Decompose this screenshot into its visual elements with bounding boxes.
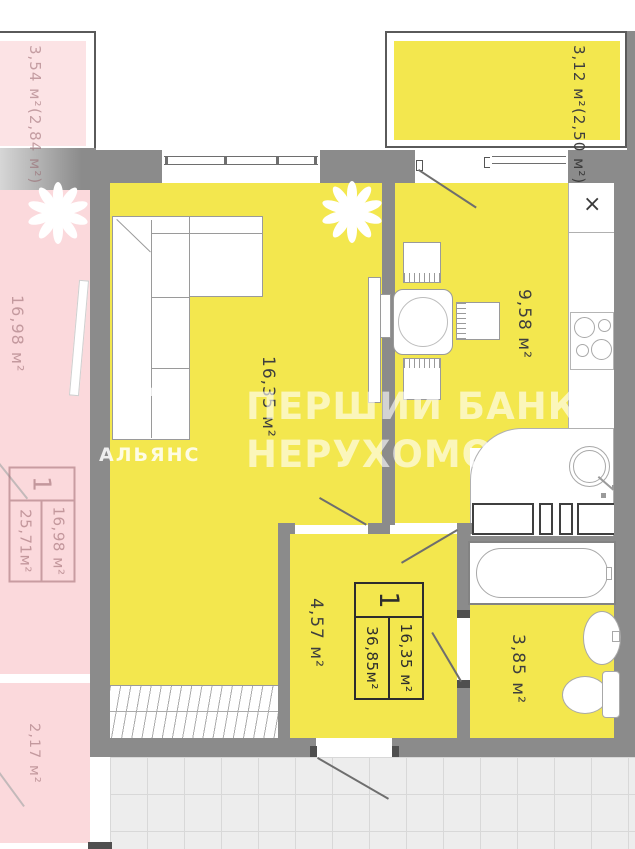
- neighbor-stamp: 1 16,98 м² 25,71м²: [9, 467, 76, 583]
- sink-cell-line: [568, 232, 614, 233]
- living-window-frame: [164, 156, 318, 165]
- cabinet-1: [472, 503, 534, 535]
- wall-hallway-bath-lower: [457, 682, 470, 738]
- hallway-area-label: 4,57 м²: [306, 598, 326, 668]
- wall-living-hallway: [278, 523, 290, 738]
- wall-top-mid: [320, 150, 415, 183]
- wall-hallway-top-1: [278, 523, 295, 534]
- plant-icon: [322, 181, 382, 243]
- balcony-door-opening: [415, 150, 490, 183]
- sofa-seat-line-1: [151, 297, 190, 298]
- kitchen-area-label: 9,58 м²: [514, 289, 534, 359]
- wall-bottom-left: [90, 738, 316, 757]
- watermark-line1: ПЕРШИЙ БАНК: [246, 385, 579, 428]
- sofa-top-line: [151, 233, 263, 234]
- neighbor-number: 1: [11, 469, 74, 502]
- apartment-stamp: 1 16,35 м² 36,85м²: [354, 582, 424, 700]
- neighbor-room-area-label: 16,98 м²: [8, 295, 27, 372]
- apartment-number: 1: [356, 584, 422, 618]
- floor-plan: ×: [0, 0, 635, 849]
- dining-chair-top-back: [404, 273, 440, 282]
- washbasin-faucet: [612, 631, 620, 642]
- balcony-area-line1: 3,12 м²: [570, 45, 588, 108]
- balcony-area-line2: (2,50 м²): [570, 108, 588, 184]
- toilet-tank: [602, 671, 620, 718]
- bathroom-area-label: 3,85 м²: [508, 634, 528, 704]
- neighbor-total-area: 25,71м²: [11, 502, 42, 581]
- stove-burner-2: [598, 319, 611, 332]
- sofa-chaise: [189, 216, 263, 297]
- neighbor-small-area-label: 2,17 м²: [26, 723, 42, 784]
- neighbor-living-area: 16,98 м²: [41, 502, 74, 581]
- bathtub-faucet: [606, 567, 612, 580]
- dining-chair-bottom-back: [404, 359, 440, 368]
- watermark-line2: НЕРУХОМОСТІ: [246, 433, 563, 476]
- dining-table-top: [398, 297, 448, 347]
- cabinet-2: [539, 503, 553, 535]
- living-room-lower: [110, 525, 278, 685]
- corridor-tiles: [110, 757, 635, 849]
- living-window-tick-3: [276, 156, 279, 165]
- stove-burner-3: [576, 344, 589, 357]
- agency-logo-text: АЛЬЯНС: [99, 444, 200, 466]
- apartment-living-area: 16,35 м²: [388, 618, 422, 698]
- agency-logo-icon: Л: [113, 376, 174, 444]
- living-window-tick-2: [224, 156, 227, 165]
- dining-chair-left: [380, 294, 391, 338]
- living-window-opening: [162, 150, 320, 183]
- round-sink-handle-2: [601, 493, 606, 498]
- living-window-tick-1: [165, 156, 168, 165]
- sofa-seat-line-2: [151, 368, 190, 369]
- entry-jamb-2: [392, 746, 399, 757]
- kitchen-window-frame: [492, 156, 566, 164]
- entry-jamb-1: [310, 746, 317, 757]
- jamb-bath-1: [457, 610, 470, 618]
- balcony-right-wall: [627, 31, 635, 150]
- kitchen-window-opening: [490, 150, 568, 183]
- plant-icon: [28, 182, 88, 244]
- neighbor-window-band: [0, 674, 95, 683]
- neighbor-balcony-area-label: 3,54 м² (2,84 м²): [26, 45, 44, 184]
- corridor-stub: [88, 842, 112, 849]
- apartment-total-area: 36,85м²: [356, 618, 388, 698]
- wall-bottom-right: [392, 738, 635, 757]
- cabinet-3: [559, 503, 573, 535]
- living-window-tick-4: [314, 156, 317, 165]
- entry-opening: [316, 738, 392, 757]
- bathtub-inner: [476, 548, 608, 598]
- stove-burner-1: [574, 317, 595, 338]
- dining-chair-right-back: [457, 303, 466, 339]
- neighbor-balcony-area-line2: (2,84 м²): [26, 108, 44, 184]
- wall-hallway-top-2: [368, 523, 390, 534]
- wardrobe-hatch-midline: [110, 711, 278, 712]
- stove-burner-4: [591, 339, 612, 360]
- sink-x-icon: ×: [583, 192, 601, 217]
- balcony-area-label: 3,12 м² (2,50 м²): [570, 45, 588, 184]
- wall-right: [614, 150, 635, 757]
- neighbor-balcony-area-line1: 3,54 м²: [26, 45, 44, 108]
